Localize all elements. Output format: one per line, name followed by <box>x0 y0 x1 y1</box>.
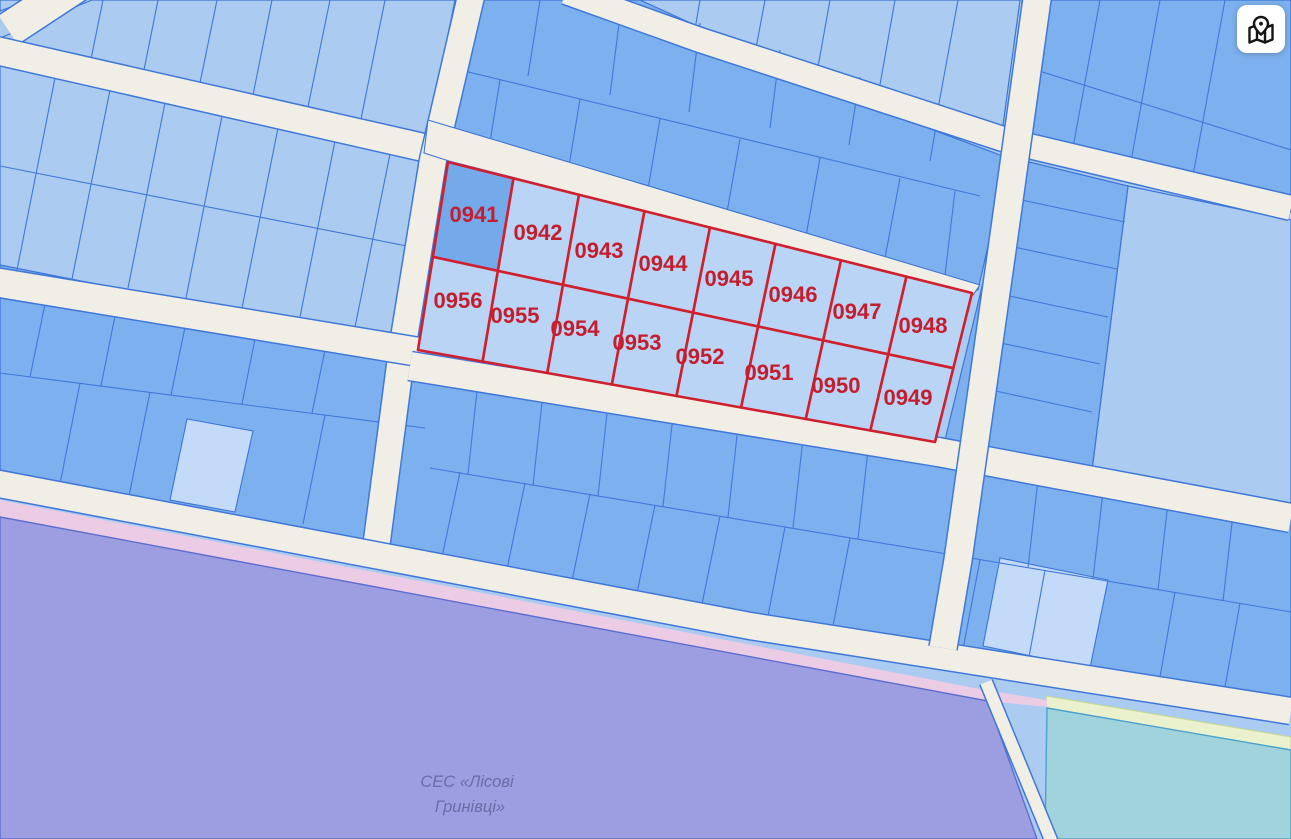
parcel-number: 0949 <box>884 385 933 410</box>
zone-label-line1: СЕС «Лісові <box>420 773 515 791</box>
cadastral-map-app: 0941 0942 0943 0944 0945 0946 0947 0948 … <box>0 0 1291 839</box>
parcel-number: 0954 <box>551 316 601 341</box>
parcel-number: 0952 <box>676 344 725 369</box>
parcel-number: 0950 <box>812 373 861 398</box>
parcel-number: 0945 <box>705 266 754 291</box>
parcel-number: 0946 <box>769 282 818 307</box>
parcel-number: 0951 <box>745 360 794 385</box>
parcel-number: 0947 <box>833 299 882 324</box>
parcel-number: 0942 <box>514 220 563 245</box>
parcel-number: 0941 <box>450 202 499 227</box>
cadastral-map-canvas[interactable]: 0941 0942 0943 0944 0945 0946 0947 0948 … <box>0 0 1291 839</box>
parcel-number: 0948 <box>899 313 948 338</box>
parcel-number: 0956 <box>434 288 483 313</box>
parcel-number: 0955 <box>491 303 540 328</box>
parcel-number: 0953 <box>613 330 662 355</box>
parcel-number: 0943 <box>575 238 624 263</box>
parcel-number: 0944 <box>639 251 689 276</box>
zone-label-line2: Гринівці» <box>435 798 505 816</box>
map-layers-button[interactable] <box>1237 5 1285 53</box>
